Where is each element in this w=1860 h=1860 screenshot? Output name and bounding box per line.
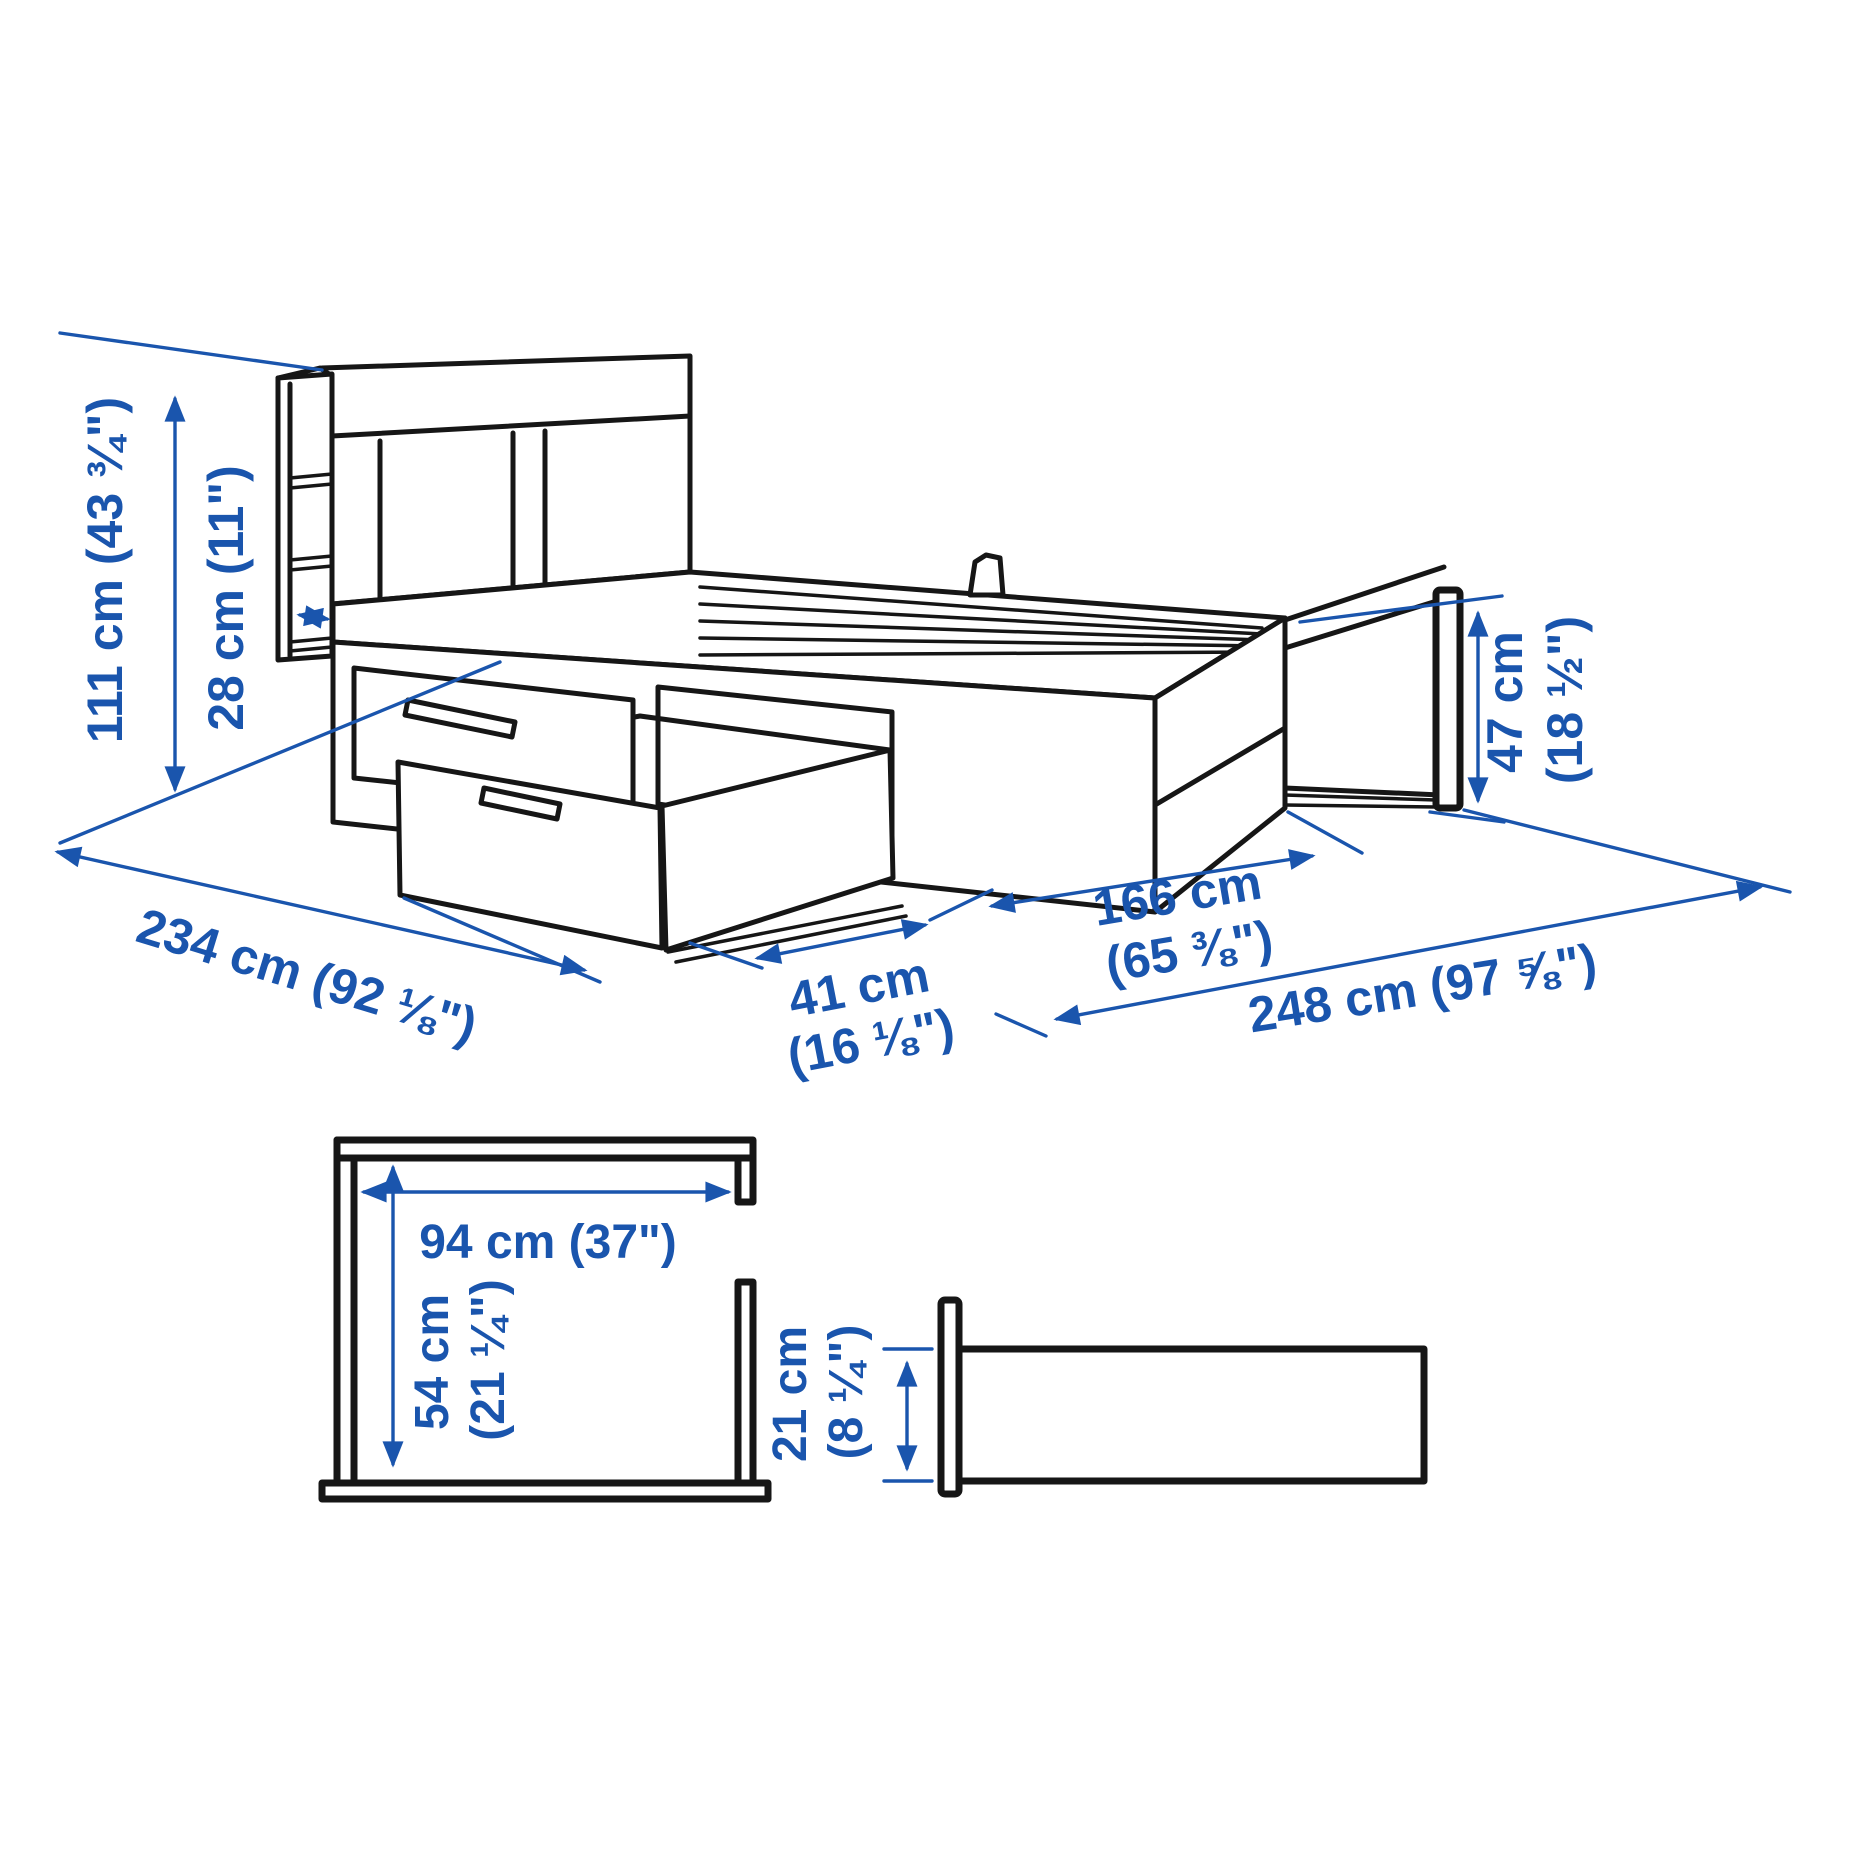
dim-label-headboard-depth: 28 cm (11") — [198, 465, 254, 731]
headboard-cross-section: 94 cm (37") 54 cm (21 ¼") — [322, 1140, 768, 1499]
dim-label-rail-height-in: (8 ¼") — [820, 1325, 873, 1460]
dim-label-footboard-height-in: (18 ½") — [1537, 616, 1593, 784]
bed-dimension-diagram: 111 cm (43 ¾") 28 cm (11") 234 cm (92 ⅛"… — [0, 0, 1860, 1860]
dim-label-headboard-clear-height-in: (21 ¼") — [462, 1279, 515, 1440]
dim-label-headboard-clear-height-cm: 54 cm — [406, 1294, 459, 1430]
dim-label-footboard-height-cm: 47 cm — [1477, 631, 1533, 773]
dim-label-headboard-clear-width: 94 cm (37") — [419, 1216, 677, 1269]
center-beam-bracket — [970, 555, 1003, 595]
headboard-panel — [322, 356, 690, 604]
dim-headboard-clear-width: 94 cm (37") — [364, 1192, 728, 1269]
side-rail-cross-section: 21 cm (8 ¼") — [764, 1300, 1424, 1494]
dim-headboard-clear-height: 54 cm (21 ¼") — [393, 1168, 515, 1464]
dim-label-rail-height-cm: 21 cm — [764, 1326, 817, 1462]
bed-isometric-drawing — [278, 356, 1460, 962]
dim-rail-height: 21 cm (8 ¼") — [764, 1325, 932, 1481]
diagram-canvas: 111 cm (43 ¾") 28 cm (11") 234 cm (92 ⅛"… — [0, 0, 1860, 1860]
dim-label-total-height: 111 cm (43 ¾") — [77, 397, 133, 743]
dim-label-total-length: 234 cm (92 ⅛") — [131, 898, 484, 1054]
